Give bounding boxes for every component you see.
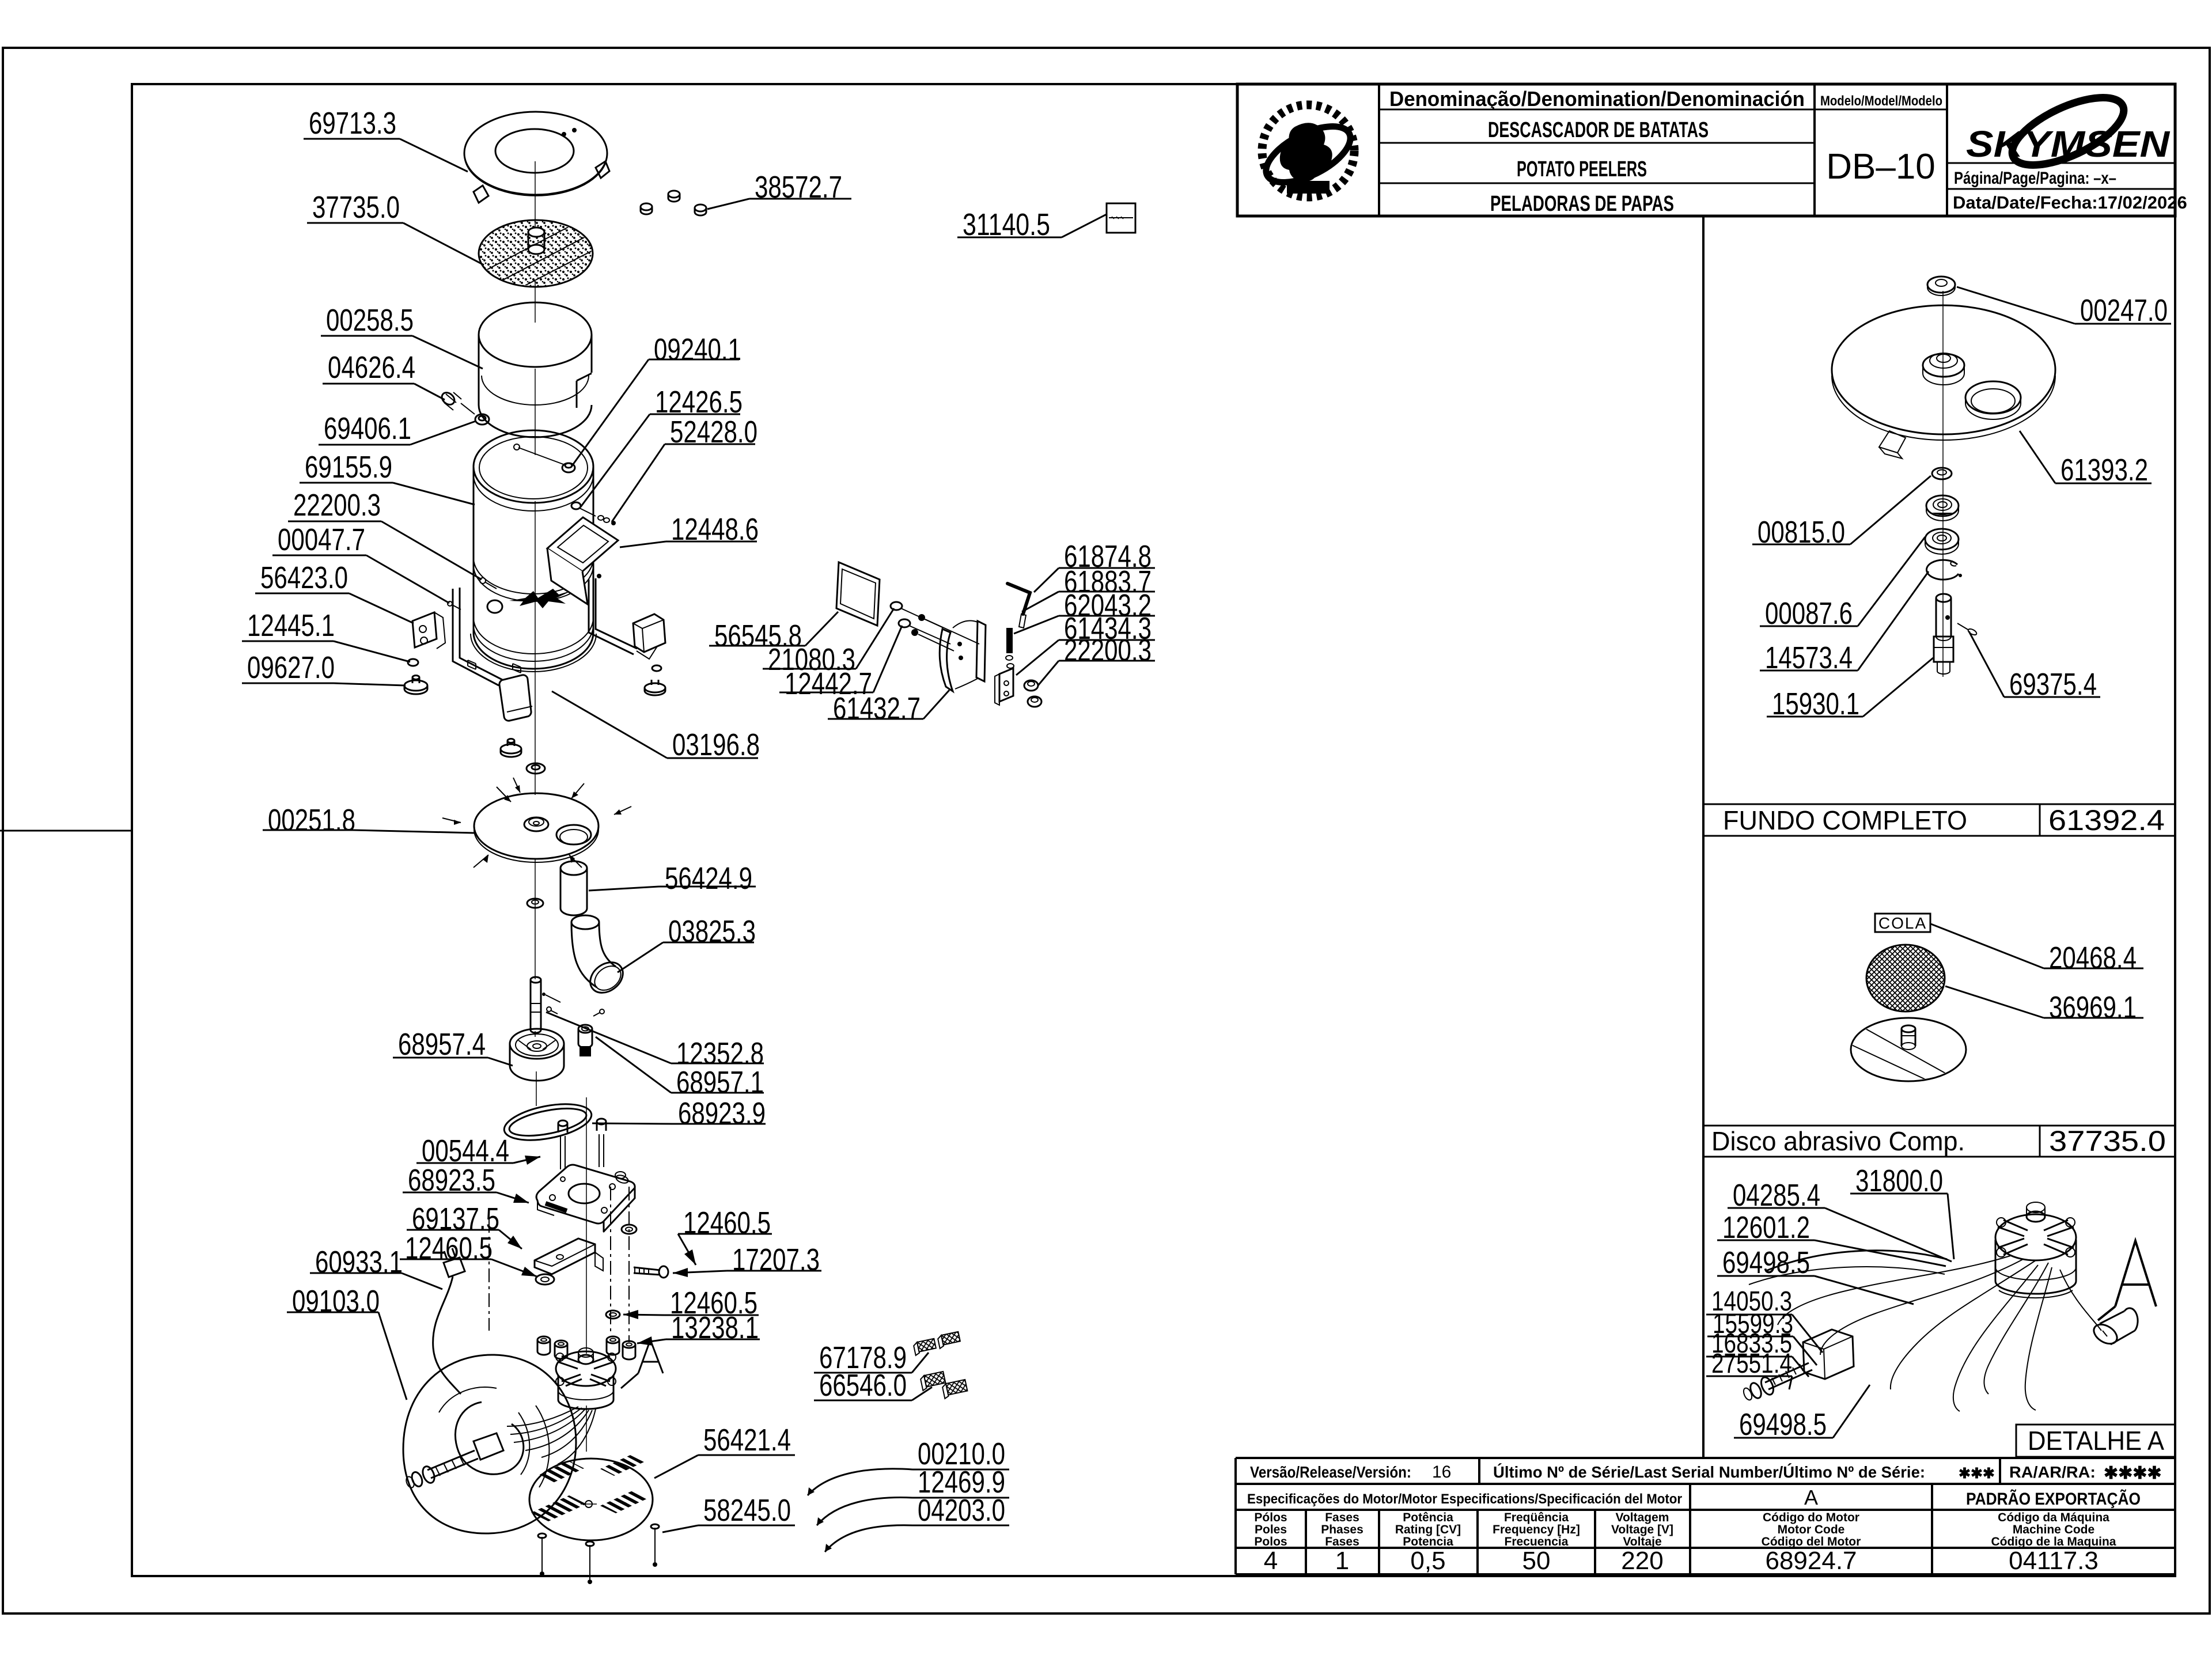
svg-text:Código do Motor: Código do Motor	[1763, 1511, 1859, 1524]
svg-text:Motor Code: Motor Code	[1778, 1523, 1845, 1536]
svg-text:Modelo/Model/Modelo: Modelo/Model/Modelo	[1820, 93, 1942, 109]
svg-text:PELADORAS DE PAPAS: PELADORAS DE PAPAS	[1490, 192, 1674, 216]
svg-text:Pólos: Pólos	[1254, 1511, 1287, 1524]
svg-text:22200.3: 22200.3	[293, 488, 381, 522]
svg-text:36969.1: 36969.1	[2049, 990, 2137, 1025]
svg-text:1: 1	[1335, 1547, 1349, 1575]
svg-text:04203.0: 04203.0	[918, 1493, 1005, 1528]
svg-text:Especificações do Motor/Motor: Especificações do Motor/Motor Especifica…	[1247, 1491, 1682, 1507]
svg-text:20468.4: 20468.4	[2049, 941, 2137, 975]
svg-text:61392.4: 61392.4	[2048, 804, 2165, 836]
svg-text:04626.4: 04626.4	[328, 350, 415, 385]
svg-text:37735.0: 37735.0	[312, 190, 400, 225]
svg-text:68923.9: 68923.9	[678, 1096, 766, 1131]
svg-text:POTATO PEELERS: POTATO PEELERS	[1517, 157, 1647, 181]
svg-text:Phases: Phases	[1321, 1523, 1363, 1536]
svg-text:09103.0: 09103.0	[292, 1284, 380, 1319]
svg-text:27551.4: 27551.4	[1711, 1349, 1792, 1379]
svg-text:69498.5: 69498.5	[1739, 1407, 1827, 1442]
svg-text:Disco abrasivo Comp.: Disco abrasivo Comp.	[1711, 1126, 1965, 1156]
svg-text:✱✱✱✱: ✱✱✱✱	[2104, 1464, 2162, 1483]
svg-text:0,5: 0,5	[1410, 1547, 1445, 1575]
svg-text:SKYMSEN: SKYMSEN	[1966, 123, 2171, 165]
svg-text:68957.1: 68957.1	[676, 1065, 764, 1100]
svg-text:Fases: Fases	[1325, 1511, 1359, 1524]
svg-text:69155.9: 69155.9	[305, 450, 392, 484]
svg-text:58245.0: 58245.0	[703, 1493, 791, 1528]
svg-text:69498.5: 69498.5	[1722, 1245, 1810, 1280]
svg-text:12460.5: 12460.5	[683, 1206, 771, 1240]
svg-text:FUNDO COMPLETO: FUNDO COMPLETO	[1723, 805, 1967, 835]
svg-text:61432.7: 61432.7	[833, 691, 921, 726]
svg-text:Voltage [V]: Voltage [V]	[1611, 1523, 1673, 1536]
svg-text:COLA: COLA	[1878, 914, 1927, 932]
svg-text:22200.3: 22200.3	[1064, 633, 1152, 668]
svg-text:220: 220	[1621, 1547, 1663, 1575]
svg-text:Rating [CV]: Rating [CV]	[1395, 1523, 1461, 1536]
svg-text:60933.1: 60933.1	[315, 1245, 403, 1279]
svg-text:56421.4: 56421.4	[703, 1423, 791, 1457]
svg-text:69713.3: 69713.3	[309, 106, 396, 141]
svg-text:Página/Page/Pagina: –x–: Página/Page/Pagina: –x–	[1954, 169, 2116, 188]
svg-text:56423.0: 56423.0	[260, 560, 348, 595]
svg-text:00251.8: 00251.8	[268, 803, 355, 838]
svg-text:DB–10: DB–10	[1826, 147, 1935, 187]
svg-text:56424.9: 56424.9	[665, 861, 752, 896]
svg-text:69406.1: 69406.1	[324, 411, 411, 446]
svg-text:Frequency [Hz]: Frequency [Hz]	[1493, 1523, 1580, 1536]
svg-text:PADRÃO EXPORTAÇÃO: PADRÃO EXPORTAÇÃO	[1966, 1489, 2141, 1509]
svg-text:12445.1: 12445.1	[247, 608, 335, 643]
svg-text:Freqüência: Freqüência	[1504, 1511, 1569, 1524]
svg-text:37735.0: 37735.0	[2049, 1125, 2166, 1157]
svg-text:Voltagem: Voltagem	[1616, 1511, 1669, 1524]
svg-text:Data/Date/Fecha:17/02/2026: Data/Date/Fecha:17/02/2026	[1953, 192, 2187, 213]
svg-text:Denominação/Denomination/Denom: Denominação/Denomination/Denominación	[1389, 87, 1805, 111]
svg-text:Código da Máquina: Código da Máquina	[1998, 1511, 2109, 1524]
svg-text:Machine Code: Machine Code	[2013, 1523, 2094, 1536]
svg-text:16: 16	[1432, 1463, 1451, 1482]
svg-text:00247.0: 00247.0	[2080, 293, 2168, 328]
svg-text:61393.2: 61393.2	[2061, 453, 2148, 487]
svg-text:09627.0: 09627.0	[247, 650, 335, 685]
svg-text:17207.3: 17207.3	[732, 1243, 820, 1277]
svg-text:✱✱✱: ✱✱✱	[1959, 1465, 1995, 1482]
svg-text:03196.8: 03196.8	[672, 728, 760, 762]
svg-text:RA/AR/RA:: RA/AR/RA:	[2009, 1463, 2096, 1481]
svg-text:68957.4: 68957.4	[398, 1027, 486, 1062]
svg-text:00047.7: 00047.7	[278, 522, 365, 557]
svg-text:A: A	[1804, 1486, 1818, 1509]
svg-text:Potência: Potência	[1403, 1511, 1453, 1524]
svg-text:66546.0: 66546.0	[819, 1368, 907, 1403]
svg-text:12460.5: 12460.5	[405, 1231, 493, 1266]
svg-text:DETALHE A: DETALHE A	[2028, 1426, 2164, 1456]
svg-text:Último Nº de Série/Last Serial: Último Nº de Série/Last Serial Number/Úl…	[1493, 1463, 1925, 1481]
svg-text:04117.3: 04117.3	[2009, 1547, 2099, 1575]
svg-text:68924.7: 68924.7	[1765, 1547, 1857, 1575]
svg-text:Versão/Release/Versión:: Versão/Release/Versión:	[1250, 1463, 1411, 1481]
svg-text:03825.3: 03825.3	[668, 914, 756, 949]
svg-text:Poles: Poles	[1255, 1523, 1287, 1536]
svg-text:09240.1: 09240.1	[654, 332, 741, 367]
svg-text:00258.5: 00258.5	[326, 303, 414, 338]
svg-text:DESCASCADOR DE BATATAS: DESCASCADOR DE BATATAS	[1488, 118, 1709, 142]
svg-text:4: 4	[1264, 1547, 1278, 1575]
svg-text:50: 50	[1522, 1547, 1551, 1575]
